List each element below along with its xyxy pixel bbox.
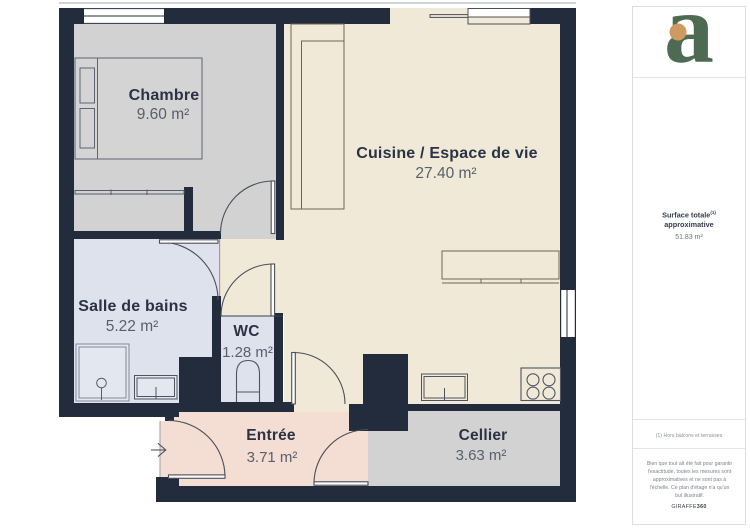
svg-text:a: a bbox=[664, 7, 714, 77]
